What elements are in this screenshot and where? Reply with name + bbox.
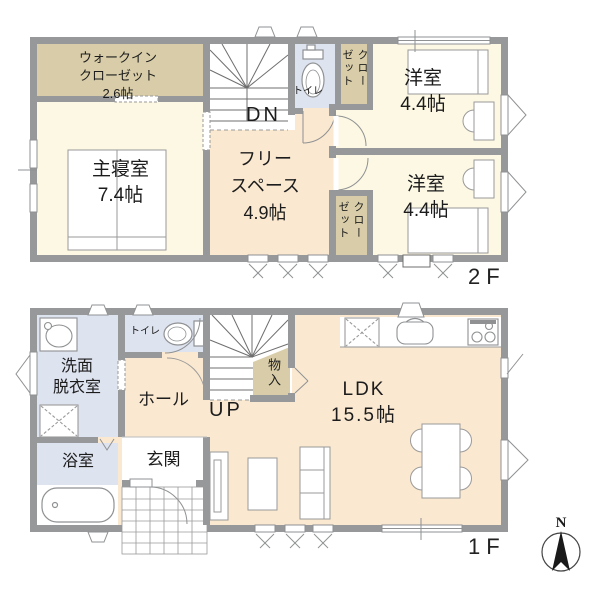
room-label-storage: 物入 [260, 358, 282, 402]
room-label-entrance: 玄関 [122, 448, 205, 472]
room-label-master-bedroom: 主寝室 7.4帖 [48, 157, 193, 208]
compass-north-label: N [549, 513, 573, 534]
floor-label-2f: 2F [468, 262, 528, 293]
room-label-ldk: LDK 15.5帖 [300, 377, 428, 428]
room-label-closet-south: クローゼット [335, 201, 365, 249]
room-label-toilet-2f: トイレ [287, 85, 329, 99]
room-label-washroom: 洗面 脱衣室 [33, 357, 121, 399]
floor-1f-plan [16, 303, 528, 554]
room-label-western-room-south: 洋室 4.4帖 [365, 172, 487, 223]
washer-space-icon [40, 405, 78, 437]
bathtub-icon [42, 488, 114, 522]
room-label-toilet-1f: トイレ [123, 325, 167, 339]
room-label-walk-in-closet: ウォークイン クローゼット 2.6帖 [40, 49, 196, 104]
kitchen-icons [340, 318, 501, 347]
room-label-bathroom: 浴室 [39, 452, 117, 473]
floorplan-canvas: ウォークイン クローゼット 2.6帖 主寝室 7.4帖 フリー スペース 4.9… [0, 0, 600, 600]
toilet-icon-1f [164, 321, 204, 346]
room-label-hall: ホール [122, 388, 205, 412]
floor-label-1f: 1F [468, 532, 528, 563]
stairs-down-label: DN [246, 101, 306, 129]
entrance-tiles [122, 487, 207, 554]
compass-icon [542, 531, 580, 571]
washstand-icon [40, 318, 77, 351]
room-label-western-room-north: 洋室 4.4帖 [362, 66, 484, 117]
room-label-free-space: フリー スペース 4.9帖 [202, 146, 328, 227]
